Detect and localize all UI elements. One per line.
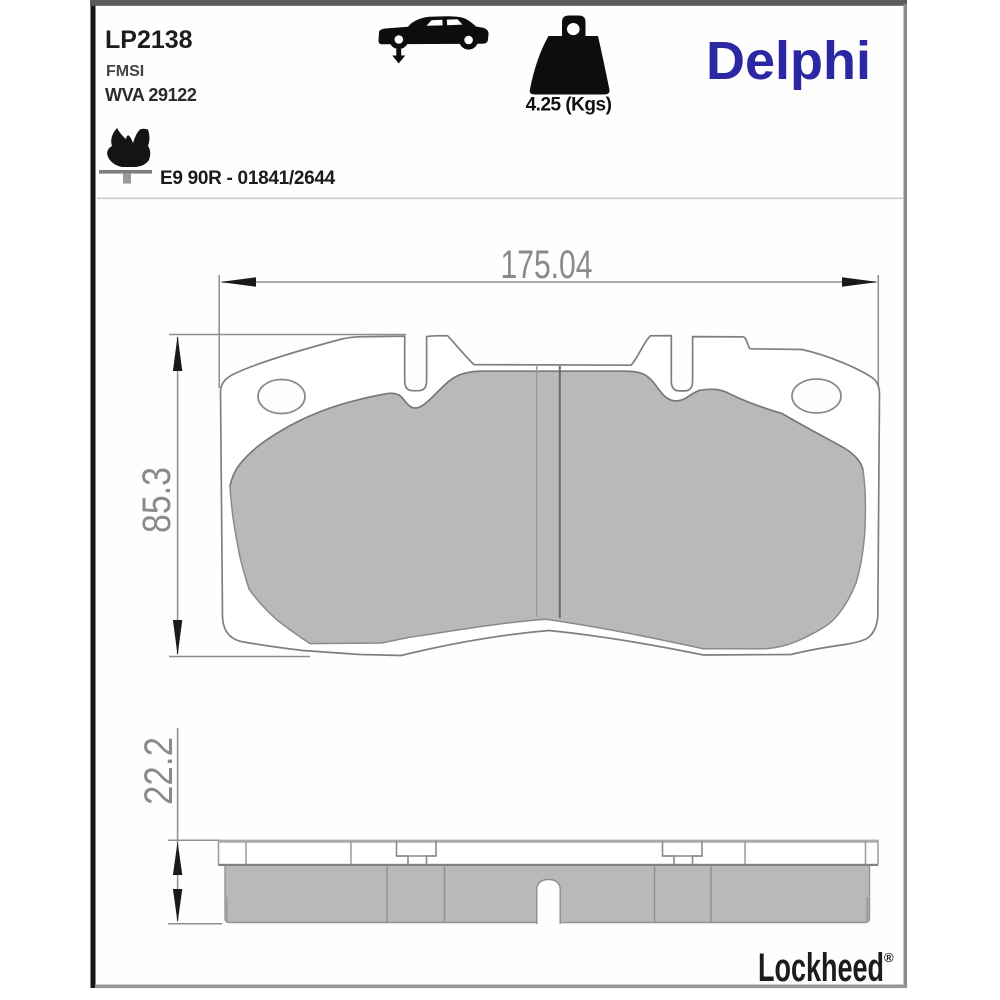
- svg-text:LP2138: LP2138: [105, 26, 193, 54]
- svg-text:85.3: 85.3: [135, 467, 179, 533]
- svg-text:Lockheed: Lockheed: [758, 946, 884, 990]
- svg-text:4.25 (Kgs): 4.25 (Kgs): [526, 95, 612, 116]
- svg-text:175.04: 175.04: [501, 243, 593, 287]
- svg-text:Delphi: Delphi: [706, 31, 871, 91]
- svg-text:FMSI: FMSI: [106, 63, 144, 80]
- svg-text:®: ®: [884, 950, 894, 965]
- svg-text:22.2: 22.2: [137, 737, 181, 805]
- svg-text:E9 90R - 01841/2644: E9 90R - 01841/2644: [160, 168, 336, 189]
- svg-text:WVA 29122: WVA 29122: [105, 85, 197, 105]
